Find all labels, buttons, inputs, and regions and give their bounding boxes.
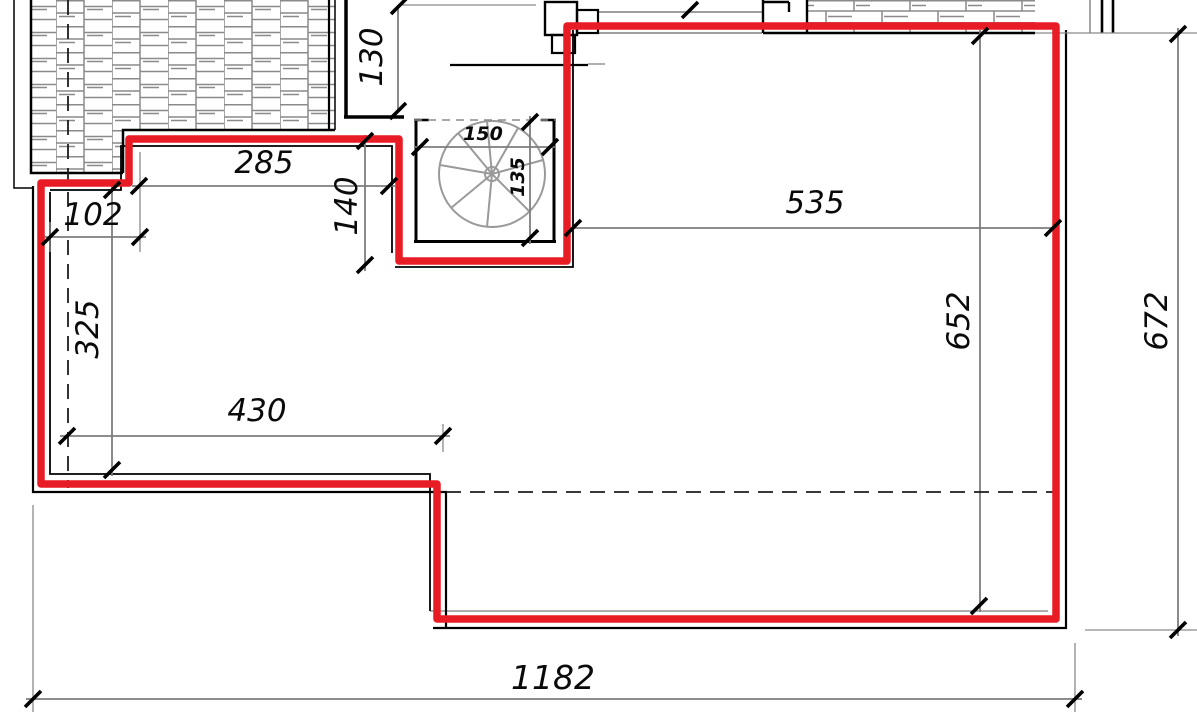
floor-plan-svg: 285 102 130 140 150 135 535 652 672 325 … (0, 0, 1197, 715)
dim-label-135: 135 (507, 157, 529, 197)
dim-label-130: 130 (354, 27, 390, 86)
dim-label-102: 102 (63, 197, 122, 233)
dim-label-535: 535 (785, 185, 844, 221)
dim-label-150: 150 (463, 123, 503, 145)
dim-label-652: 652 (941, 291, 977, 350)
dim-label-325: 325 (70, 299, 106, 358)
dim-label-1182: 1182 (511, 658, 595, 697)
dim-label-140: 140 (329, 176, 365, 235)
dim-label-430: 430 (227, 393, 286, 429)
dim-label-672: 672 (1139, 291, 1175, 350)
dim-label-285: 285 (234, 145, 293, 181)
floor-plan-canvas: 285 102 130 140 150 135 535 652 672 325 … (0, 0, 1197, 715)
secondary-walls (430, 0, 1090, 611)
